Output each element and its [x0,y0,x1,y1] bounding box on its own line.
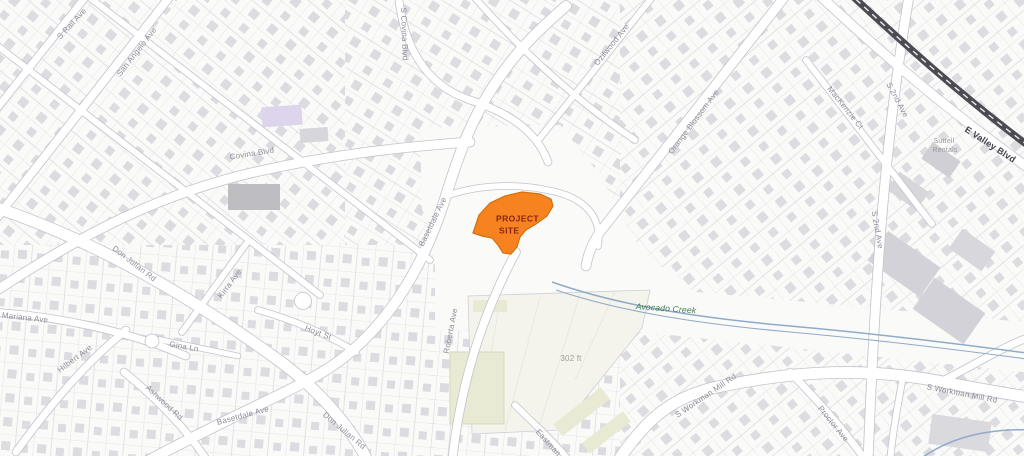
parcel-map: S Rail AveSan Angelo AveCovina BlvdS Cov… [0,0,1024,456]
map-canvas: S Rail AveSan Angelo AveCovina BlvdS Cov… [0,0,1024,456]
project-site-label-2: SITE [499,225,520,235]
project-site-label-1: PROJECT [496,213,539,223]
distance-302ft-label: 302 ft [560,354,582,363]
s-covina-blvd-label: S Covina Blvd [399,7,410,60]
suttell-rentals-label-2: Rentals [932,147,957,154]
suttell-rentals-label-1: Suttell [934,138,955,145]
